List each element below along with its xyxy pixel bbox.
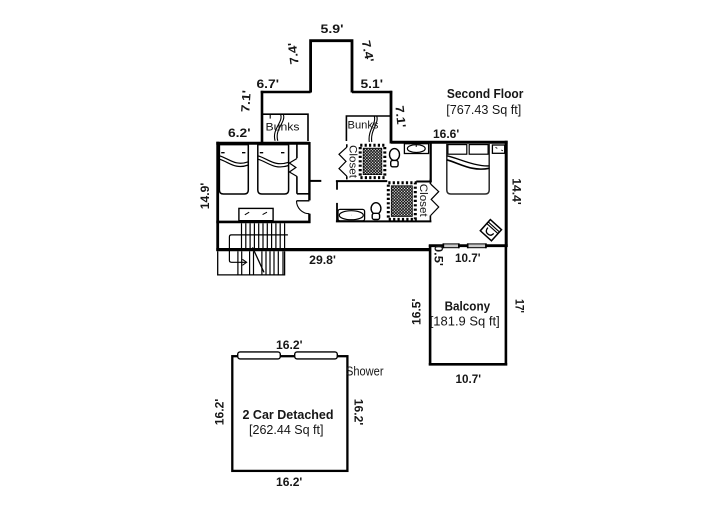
svg-text:Bunks: Bunks [266, 122, 301, 134]
svg-text:6.7': 6.7' [257, 77, 280, 91]
svg-text:Closet: Closet [346, 145, 358, 178]
svg-text:5.1': 5.1' [361, 77, 384, 91]
svg-text:16.6': 16.6' [433, 127, 459, 141]
svg-text:10.7': 10.7' [456, 372, 482, 386]
svg-text:6.2': 6.2' [228, 126, 251, 140]
svg-text:17': 17' [513, 299, 527, 313]
svg-text:16.2': 16.2' [352, 399, 366, 426]
svg-text:2 Car Detached: 2 Car Detached [243, 407, 334, 422]
svg-text:0.5': 0.5' [432, 245, 446, 266]
svg-text:5.9': 5.9' [321, 22, 344, 36]
svg-text:[262.44 Sq ft]: [262.44 Sq ft] [249, 422, 324, 437]
svg-text:16.2': 16.2' [213, 399, 227, 426]
svg-text:29.8': 29.8' [309, 253, 336, 267]
svg-text:[767.43 Sq ft]: [767.43 Sq ft] [446, 102, 521, 117]
svg-text:14.9': 14.9' [198, 183, 212, 210]
svg-text:[181.9 Sq ft]: [181.9 Sq ft] [430, 313, 500, 328]
svg-text:Closet: Closet [417, 184, 429, 217]
svg-text:10.7': 10.7' [455, 251, 481, 265]
svg-text:16.5': 16.5' [410, 298, 424, 325]
svg-text:14.4': 14.4' [510, 178, 524, 205]
svg-text:7.4': 7.4' [285, 42, 302, 66]
svg-text:7.1': 7.1' [392, 105, 408, 128]
svg-text:Bunks: Bunks [348, 119, 380, 131]
svg-text:16.2': 16.2' [276, 475, 302, 489]
svg-text:Balcony: Balcony [445, 299, 491, 314]
svg-text:16.2': 16.2' [276, 338, 303, 352]
svg-text:Shower: Shower [346, 364, 384, 379]
svg-text:Second Floor: Second Floor [447, 86, 524, 101]
svg-text:7.1': 7.1' [238, 90, 254, 113]
